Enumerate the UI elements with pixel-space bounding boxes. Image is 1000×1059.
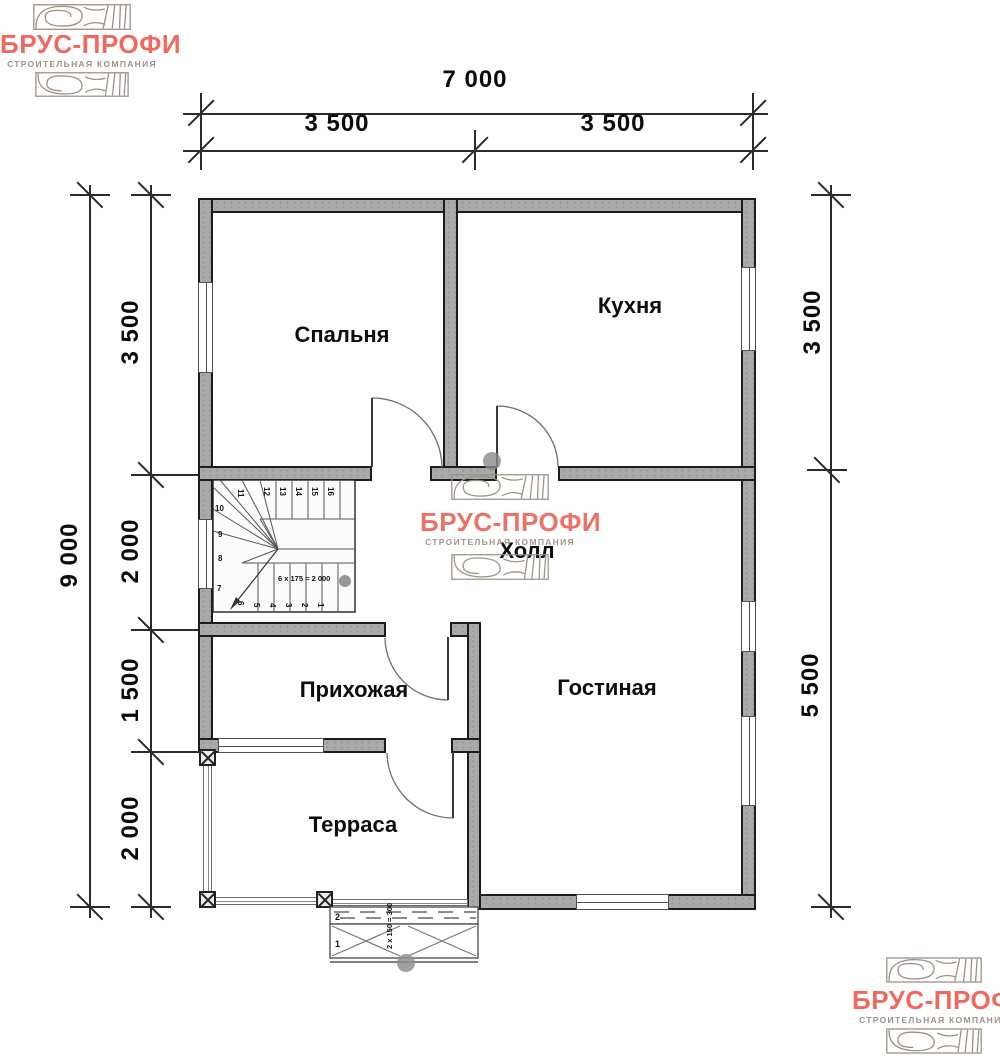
wood-plank-icon [886, 1028, 982, 1054]
wood-plank-icon [33, 3, 131, 31]
wall-bottom [667, 894, 756, 910]
dim-line-right [830, 185, 832, 918]
porch-step-number: 1 [335, 939, 340, 949]
wall-bottom [467, 894, 578, 910]
stair-number: 10 [215, 504, 224, 513]
stair-number: 11 [236, 489, 245, 498]
brand-subtitle: СТРОИТЕЛЬНАЯ КОМПАНИЯ [0, 59, 164, 69]
stair-number: 1 [316, 603, 325, 608]
brand-subtitle: СТРОИТЕЛЬНАЯ КОМПАНИЯ [852, 1015, 1000, 1025]
stair-number: 14 [294, 487, 303, 496]
stair-number: 6 [236, 601, 245, 606]
stair-number: 2 [300, 603, 309, 608]
dim-top-right: 3 500 [580, 110, 645, 138]
window [576, 894, 669, 910]
room-label-bedroom: Спальня [294, 322, 389, 348]
dim-left-seg-3: 2 000 [117, 795, 145, 860]
column-post-icon [199, 891, 216, 908]
wood-plank-icon [886, 955, 982, 985]
terrace-rail [203, 764, 212, 893]
dim-left-seg-2: 1 500 [117, 657, 145, 722]
wall-entry-stub [451, 738, 481, 753]
stair-note: 6 х 175 = 2 000 [278, 574, 330, 583]
room-label-kitchen: Кухня [598, 293, 662, 319]
brand-logo-bottom-right: БРУС-ПРОФИ СТРОИТЕЛЬНАЯ КОМПАНИЯ [852, 955, 1000, 1054]
wall-hall-bottom [198, 622, 386, 637]
room-label-terrace: Терраса [309, 812, 397, 838]
brand-title: БРУС-ПРОФИ [420, 509, 580, 535]
column-post-icon [316, 891, 333, 908]
dim-line-top-total [183, 113, 768, 115]
window [218, 738, 324, 753]
wall-entry-bottom [322, 738, 386, 753]
stair-number: 13 [278, 487, 287, 496]
brand-title: БРУС-ПРОФИ [0, 31, 164, 57]
staircase: 10 9 8 7 11 12 13 14 15 16 6 5 4 3 2 1 6… [212, 479, 356, 613]
stair-number: 7 [217, 584, 222, 593]
wall-mid-horizontal [558, 466, 756, 481]
extension-line [752, 130, 754, 170]
artifact-dot [339, 575, 351, 587]
wood-plank-icon [451, 466, 549, 508]
porch-step-number: 2 [335, 912, 340, 922]
stair-number: 12 [262, 487, 271, 496]
stair-number: 16 [326, 487, 335, 496]
brand-watermark-center: БРУС-ПРОФИ СТРОИТЕЛЬНАЯ КОМПАНИЯ [420, 466, 580, 586]
wall-mid-horizontal [198, 466, 372, 481]
door-swing [387, 753, 453, 818]
dim-line-left-split [150, 185, 152, 918]
stair-number: 5 [252, 603, 261, 608]
wall-left [198, 198, 213, 284]
stair-number: 15 [310, 487, 319, 496]
dim-left-seg-1: 2 000 [117, 518, 145, 583]
extension-line [474, 130, 476, 170]
column-post-icon [199, 749, 216, 766]
dim-left-seg-0: 3 500 [117, 299, 145, 364]
dim-left-total: 9 000 [56, 522, 84, 587]
extension-line [200, 130, 202, 170]
brand-logo-top-left: БРУС-ПРОФИ СТРОИТЕЛЬНАЯ КОМПАНИЯ [0, 3, 164, 97]
stair-number: 4 [268, 603, 277, 608]
dim-right-seg-1: 5 500 [797, 652, 825, 717]
floor-plan-page: БРУС-ПРОФИ СТРОИТЕЛЬНАЯ КОМПАНИЯ 7 000 3… [0, 0, 1000, 1059]
porch-note: 2 х 150 = 300 [385, 903, 394, 949]
brand-title: БРУС-ПРОФИ [852, 987, 1000, 1013]
room-label-entry: Прихожая [300, 677, 409, 703]
terrace-rail [331, 899, 468, 906]
window [741, 601, 756, 652]
terrace-rail [214, 897, 318, 905]
window [741, 716, 756, 806]
window [198, 519, 213, 589]
wall-right [741, 198, 756, 269]
dim-top-left: 3 500 [304, 110, 369, 138]
window [198, 282, 213, 373]
room-label-living: Гостиная [557, 675, 656, 701]
door-swing [497, 406, 558, 467]
window [741, 267, 756, 351]
dim-line-left-total [89, 185, 91, 918]
brand-subtitle: СТРОИТЕЛЬНАЯ КОМПАНИЯ [420, 537, 580, 547]
stair-number: 3 [284, 603, 293, 608]
wall-living-left [467, 622, 481, 910]
wall-left [198, 587, 213, 752]
wall-top [198, 198, 756, 213]
wood-plank-icon [451, 548, 549, 586]
dim-right-seg-0: 3 500 [799, 289, 827, 354]
porch-steps: 2 1 2 х 150 = 300 [326, 903, 482, 991]
wall-right [741, 650, 756, 718]
door-swing [372, 398, 442, 467]
wall-left [198, 371, 213, 521]
wall-center-vertical [443, 198, 458, 480]
dim-top-total: 7 000 [442, 66, 507, 94]
stair-number: 8 [218, 554, 223, 563]
wood-plank-icon [34, 72, 130, 97]
stair-number: 9 [218, 530, 223, 539]
